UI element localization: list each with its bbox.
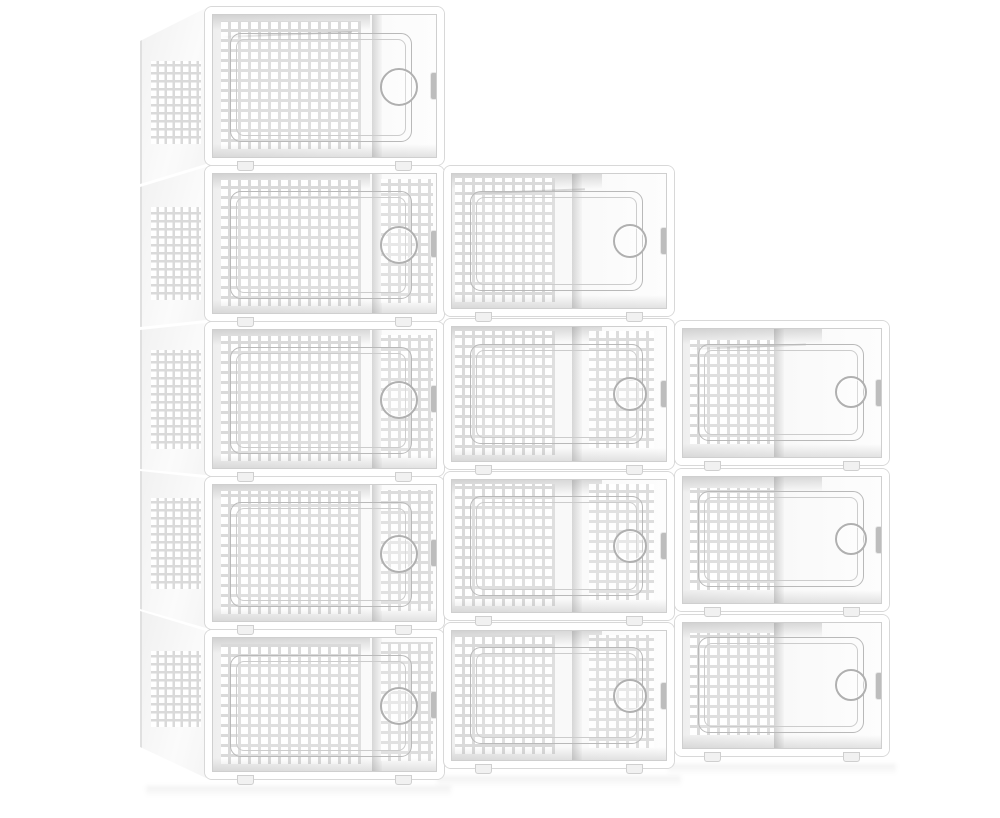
stacking-foot xyxy=(395,161,412,171)
drop-front-door xyxy=(230,347,412,453)
box-interior xyxy=(451,326,667,462)
box-interior xyxy=(212,173,437,314)
storage-box xyxy=(676,616,888,755)
stacking-foot xyxy=(626,312,643,322)
door-latch xyxy=(431,540,437,566)
door-latch xyxy=(431,73,437,99)
side-perforation-grid xyxy=(151,61,201,144)
storage-box xyxy=(206,478,443,628)
drop-front-door xyxy=(230,191,412,298)
drop-front-door xyxy=(230,33,412,142)
drop-front-door xyxy=(470,344,643,445)
storage-box xyxy=(206,631,443,778)
stacking-foot xyxy=(237,161,254,171)
side-perforation-grid xyxy=(151,350,201,449)
box-interior xyxy=(212,484,437,622)
door-latch xyxy=(661,533,667,559)
stacking-foot xyxy=(395,472,412,482)
interior-bottom-shadow xyxy=(212,758,437,772)
floor-shadow xyxy=(437,776,681,787)
drop-front-door xyxy=(698,344,864,442)
stacking-foot xyxy=(843,607,860,617)
stacking-foot xyxy=(843,752,860,762)
finger-hole xyxy=(613,224,647,258)
stacking-foot xyxy=(237,317,254,327)
finger-hole xyxy=(380,535,418,573)
drop-front-door xyxy=(230,502,412,607)
interior-bottom-shadow xyxy=(212,608,437,622)
storage-box xyxy=(206,167,443,320)
finger-hole xyxy=(380,226,418,264)
side-perforation-grid xyxy=(151,498,201,589)
drop-front-door xyxy=(470,191,643,292)
door-latch xyxy=(661,228,667,254)
door-latch xyxy=(661,381,667,407)
stacking-foot xyxy=(395,625,412,635)
stacking-foot xyxy=(237,625,254,635)
interior-bottom-shadow xyxy=(451,599,667,613)
door-latch xyxy=(661,683,667,709)
interior-bottom-shadow xyxy=(212,300,437,314)
interior-bottom-shadow xyxy=(682,590,882,604)
box-interior xyxy=(682,328,882,458)
box-interior xyxy=(212,637,437,772)
box-interior xyxy=(451,173,667,309)
stacking-foot xyxy=(395,317,412,327)
interior-bottom-shadow xyxy=(212,455,437,469)
finger-hole xyxy=(613,377,647,411)
box-interior xyxy=(682,476,882,604)
box-interior xyxy=(451,630,667,761)
drop-front-door xyxy=(470,496,643,595)
box-interior xyxy=(212,329,437,469)
door-latch xyxy=(431,692,437,718)
interior-bottom-shadow xyxy=(682,444,882,458)
side-perforation-grid xyxy=(151,651,201,727)
stacking-foot xyxy=(704,461,721,471)
side-perforation-grid xyxy=(151,207,201,300)
storage-box xyxy=(676,470,888,610)
floor-shadow xyxy=(668,764,896,775)
interior-bottom-shadow xyxy=(451,295,667,309)
door-latch xyxy=(876,673,882,699)
box-interior xyxy=(212,14,437,158)
finger-hole xyxy=(835,669,867,701)
floor-shadow xyxy=(146,786,451,797)
finger-hole xyxy=(613,529,647,563)
stacking-foot xyxy=(704,607,721,617)
drop-front-door xyxy=(470,647,643,744)
stacking-foot xyxy=(475,465,492,475)
box-interior xyxy=(451,479,667,613)
stacking-foot xyxy=(237,472,254,482)
interior-bottom-shadow xyxy=(451,747,667,761)
finger-hole xyxy=(835,523,867,555)
stacking-foot xyxy=(237,775,254,785)
stacking-foot xyxy=(475,764,492,774)
stacking-foot xyxy=(475,312,492,322)
drop-front-door xyxy=(230,655,412,758)
interior-bottom-shadow xyxy=(212,144,437,158)
stacking-foot xyxy=(475,616,492,626)
storage-box xyxy=(445,473,673,619)
box-interior xyxy=(682,622,882,749)
door-latch xyxy=(431,386,437,412)
stacking-foot xyxy=(395,775,412,785)
storage-box xyxy=(676,322,888,464)
drop-front-door xyxy=(698,491,864,587)
stacking-foot xyxy=(626,465,643,475)
stacking-foot xyxy=(843,461,860,471)
stacking-foot xyxy=(626,616,643,626)
finger-hole xyxy=(380,68,418,106)
product-photo xyxy=(0,0,1000,799)
finger-hole xyxy=(835,376,867,408)
stacking-foot xyxy=(704,752,721,762)
storage-box xyxy=(206,323,443,475)
door-latch xyxy=(876,380,882,406)
finger-hole xyxy=(380,381,418,419)
door-latch xyxy=(876,527,882,553)
drop-front-door xyxy=(698,637,864,732)
storage-box xyxy=(445,167,673,315)
storage-box xyxy=(445,624,673,767)
stacking-foot xyxy=(626,764,643,774)
storage-box xyxy=(206,8,443,164)
finger-hole xyxy=(380,687,418,725)
storage-box xyxy=(445,320,673,468)
finger-hole xyxy=(613,679,647,713)
interior-bottom-shadow xyxy=(451,448,667,462)
interior-bottom-shadow xyxy=(682,735,882,749)
door-latch xyxy=(431,231,437,257)
